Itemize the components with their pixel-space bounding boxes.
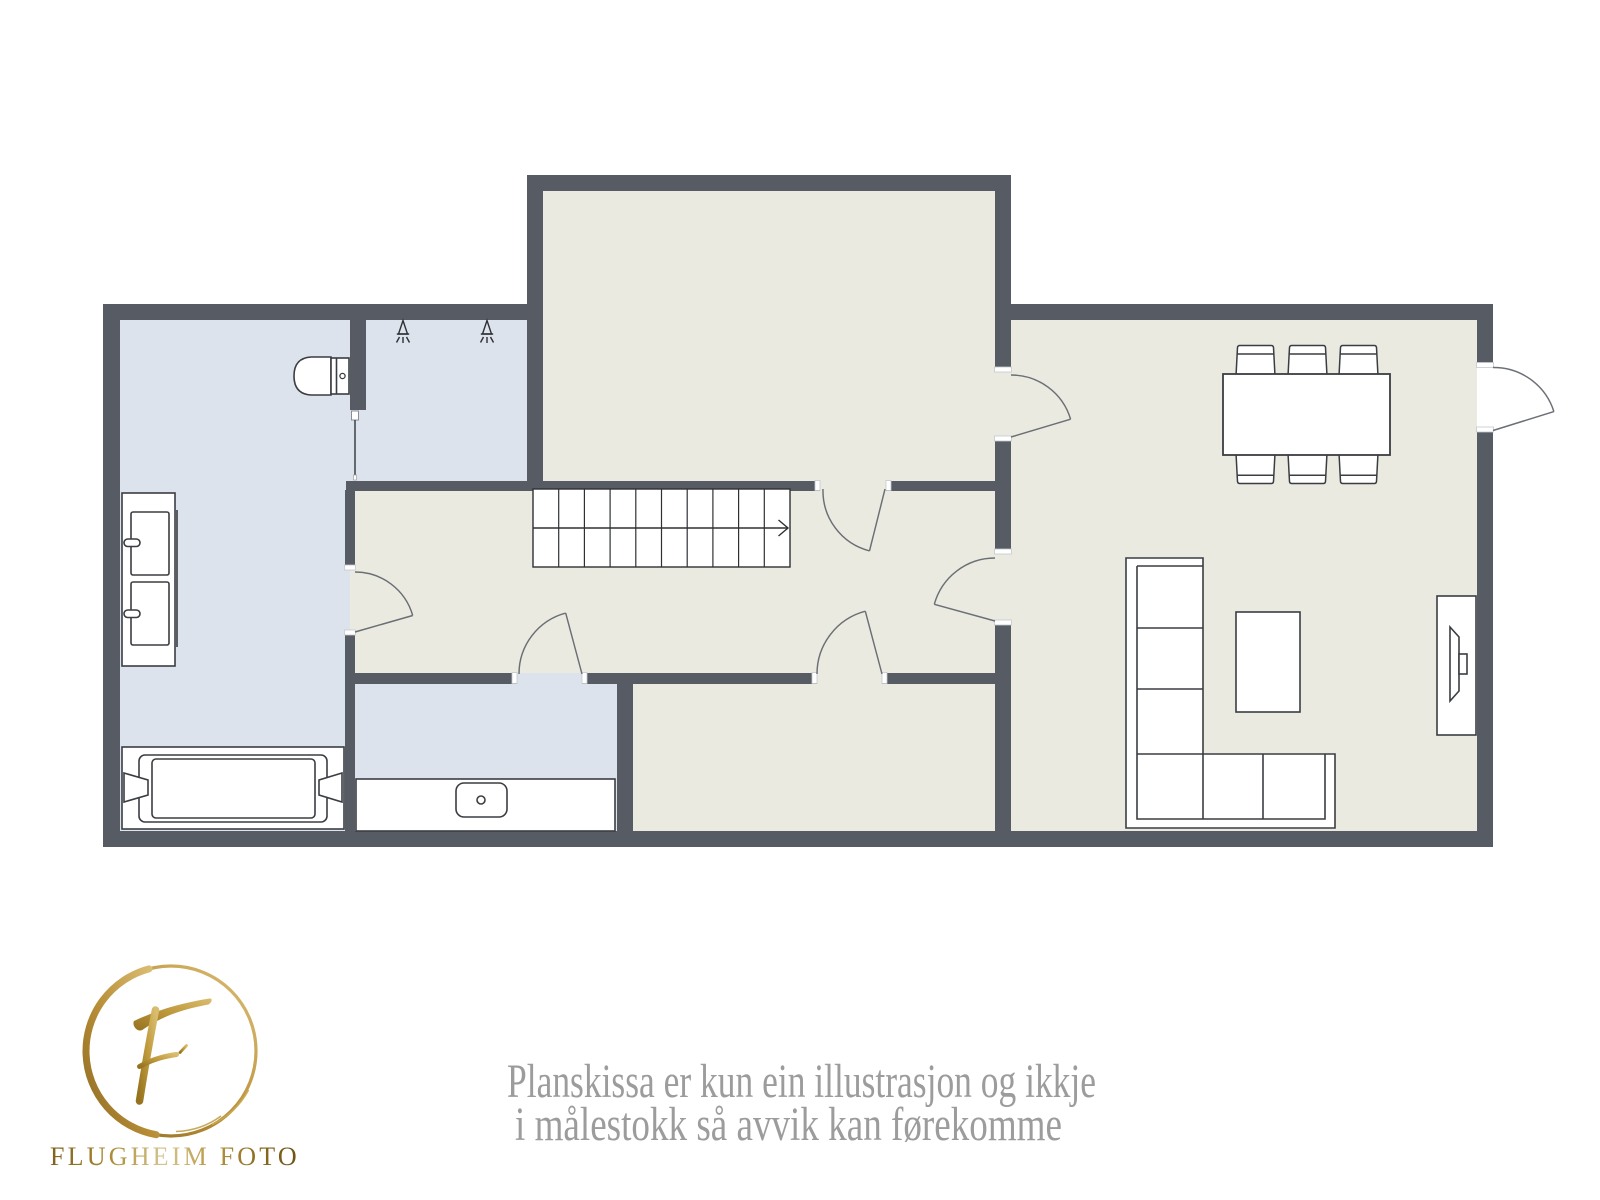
svg-text:i målestokk så avvik kan førek: i målestokk så avvik kan førekomme xyxy=(515,1098,1062,1151)
svg-text:FLUGHEIM FOTO: FLUGHEIM FOTO xyxy=(50,1142,300,1171)
